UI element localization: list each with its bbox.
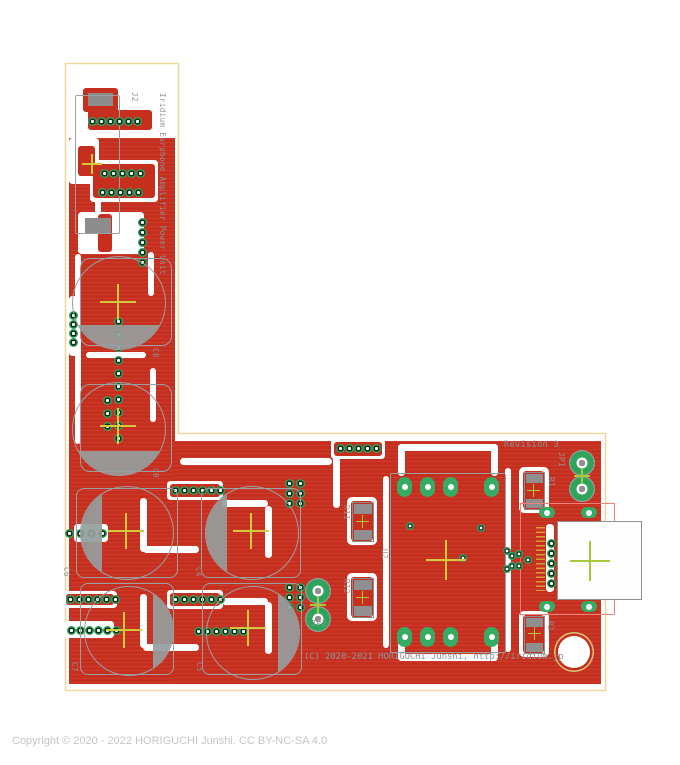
usb-pin-strip [536,527,545,591]
through-hole-pad [180,595,189,604]
through-hole-pad [66,595,75,604]
resistor-pad [354,580,372,590]
through-hole-pad [125,188,134,197]
resistor-pad [354,606,372,616]
trace-clearance [398,444,405,476]
ic-pad [443,477,458,497]
via [515,562,523,570]
via [503,547,511,555]
through-hole-pad [136,169,145,178]
trace-clearance [491,444,498,476]
trace-clearance [383,476,389,648]
through-hole-pad [138,248,147,257]
pcb-layout-image: Iridium Earphone Amplifier Power Unit J2… [0,0,680,765]
ic-pad [397,477,412,497]
label-c5: C5 [195,662,204,672]
label-c4: C4 [194,567,203,577]
c8-crosshair [100,284,136,320]
usb-mount-pad [539,601,555,612]
through-hole-pad [109,169,118,178]
r2-crosshair [528,627,541,640]
through-hole-pad [97,117,106,126]
through-hole-pad [336,444,345,453]
through-hole-pad [98,188,107,197]
through-hole-pad [124,117,133,126]
through-hole-pad [547,559,556,568]
through-hole-pad [127,169,136,178]
usb-mount-pad [539,507,555,518]
cap-polarity-fill [73,325,165,349]
through-hole-pad [189,486,198,495]
resistor-pad [354,504,372,514]
cap-polarity-fill [206,487,227,579]
via [515,550,523,558]
through-hole-pad [547,539,556,548]
through-hole-pad [372,444,381,453]
trace-clearance [398,444,498,451]
cap-polarity-fill [153,587,173,675]
via [477,524,485,532]
resistor-pad [354,530,372,540]
through-hole-pad [106,117,115,126]
c4-crosshair [233,513,269,549]
through-hole-pad [138,218,147,227]
jp2-crosshair [310,597,326,613]
ic-pad [420,627,435,647]
through-hole-pad [114,369,123,378]
c7-crosshair [106,612,142,648]
r11-crosshair [356,515,369,528]
through-hole-pad [88,117,97,126]
label-u2: U2 [380,549,389,559]
through-hole-pad [363,444,372,453]
cap-polarity-fill [278,587,299,679]
through-hole-pad [133,117,142,126]
footer-copyright: Copyright © 2020 - 2022 HORIGUCHI Junshi… [12,735,327,747]
through-hole-pad [547,579,556,588]
pad-row [98,188,143,197]
silkscreen-copyright: (C) 2020-2021 HORIGUCHI Junshi, http://i… [304,652,564,662]
ic-pad [484,627,499,647]
label-c8: C8 [151,348,160,358]
through-hole-pad [100,169,109,178]
through-hole-pad [134,188,143,197]
through-hole-pad [138,228,147,237]
pad-row [336,444,381,453]
label-r2: R2 [546,621,555,631]
through-hole-pad [285,479,294,488]
ic-pad [443,627,458,647]
through-hole-pad [114,356,123,365]
resistor-pad [526,643,543,652]
label-jp2: JP2 [311,619,327,628]
usb-mount-pad [581,507,597,518]
label-r11: R11 [342,505,351,520]
through-hole-pad [354,444,363,453]
silkscreen-title: Iridium Earphone Amplifier Power Unit [158,93,167,275]
cap-polarity-fill [81,487,102,579]
c9-crosshair [100,408,136,444]
through-hole-pad [345,444,354,453]
u2-crosshair [426,540,466,580]
through-hole-pad [115,117,124,126]
via [503,565,511,573]
label-c9: C9 [151,468,160,478]
through-hole-pad [67,626,76,635]
pad-row [88,117,142,126]
label-c7: C7 [70,662,79,672]
label-c6: C6 [62,567,71,577]
trace-clearance [88,240,144,246]
through-hole-pad [116,188,125,197]
ic-pad [484,477,499,497]
through-hole-pad [547,569,556,578]
trace-clearance [180,458,332,465]
j2-pad-gray [85,218,111,233]
through-hole-pad [296,479,305,488]
ic-pad [420,477,435,497]
c5-crosshair [230,610,266,646]
resistor-pad [526,618,543,627]
usb-pin-pads [547,539,556,588]
through-hole-pad [118,169,127,178]
label-jp1: JP1 [557,452,566,467]
via [406,522,414,530]
through-hole-pad [107,188,116,197]
usb-crosshair [570,541,610,581]
r12-crosshair [356,591,369,604]
through-hole-pad [138,238,147,247]
label-j2: J2 [130,92,139,102]
through-hole-pad [189,595,198,604]
c6-crosshair [108,513,144,549]
resistor-pad [526,474,543,483]
pad-row [100,169,145,178]
through-hole-pad [547,549,556,558]
jp1-crosshair [574,468,590,484]
label-r1: R1 [547,477,556,487]
via [524,556,532,564]
usb-mount-pad [581,601,597,612]
r1-crosshair [527,484,540,497]
through-hole-pad [65,529,74,538]
j2-origin-crosshair [82,154,102,174]
through-hole-pad [180,486,189,495]
silkscreen-revision: Revision 3 [504,440,559,450]
label-r12: R12 [342,579,351,594]
ic-pad [397,627,412,647]
